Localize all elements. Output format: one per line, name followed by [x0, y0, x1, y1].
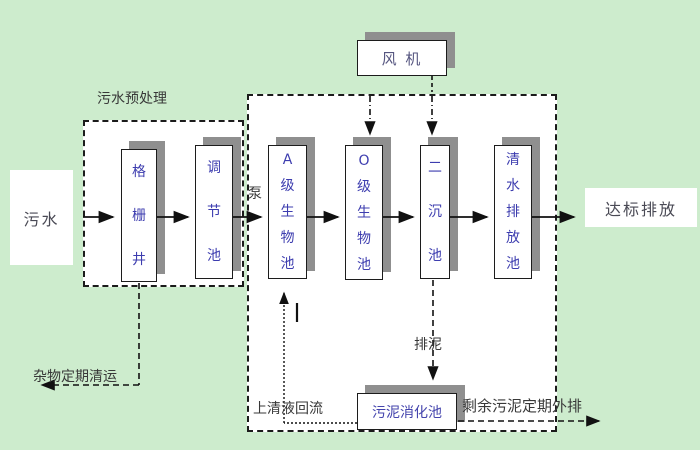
tank-clear-water-discharge: 清 水 排 放 池 [494, 145, 532, 279]
effluent-box: 达标排放 [585, 188, 697, 227]
fan-box: 风 机 [357, 40, 447, 76]
influent-box: 污水 [10, 170, 73, 265]
tank-secondary-clarifier: 二 沉 池 [420, 145, 450, 279]
wastewater-process-diagram: 污水 达标排放 风 机 污泥消化池 格 栅 井 调 节 池 A 级 生 物 池 … [0, 0, 700, 450]
sludge-discharge-label: 排泥 [414, 334, 442, 354]
effluent-label: 达标排放 [605, 196, 677, 220]
supernatant-return-label: 上清液回流 [253, 398, 323, 418]
tank-a-stage-bio: A 级 生 物 池 [268, 145, 307, 279]
sludge-digester-label: 污泥消化池 [372, 402, 442, 422]
debris-removal-label: 杂物定期清运 [33, 366, 117, 386]
influent-label: 污水 [23, 206, 59, 230]
fan-label: 风 机 [382, 48, 423, 69]
pump-label: 泵 [248, 183, 262, 203]
surplus-sludge-label: 剩余污泥定期外排 [462, 395, 582, 416]
tank-o-stage-bio: O 级 生 物 池 [345, 145, 383, 280]
tank-regulating: 调 节 池 [195, 145, 233, 279]
pretreatment-label: 污水预处理 [97, 88, 167, 108]
tank-grid-well: 格 栅 井 [121, 149, 157, 282]
sludge-digester-box: 污泥消化池 [357, 393, 457, 430]
